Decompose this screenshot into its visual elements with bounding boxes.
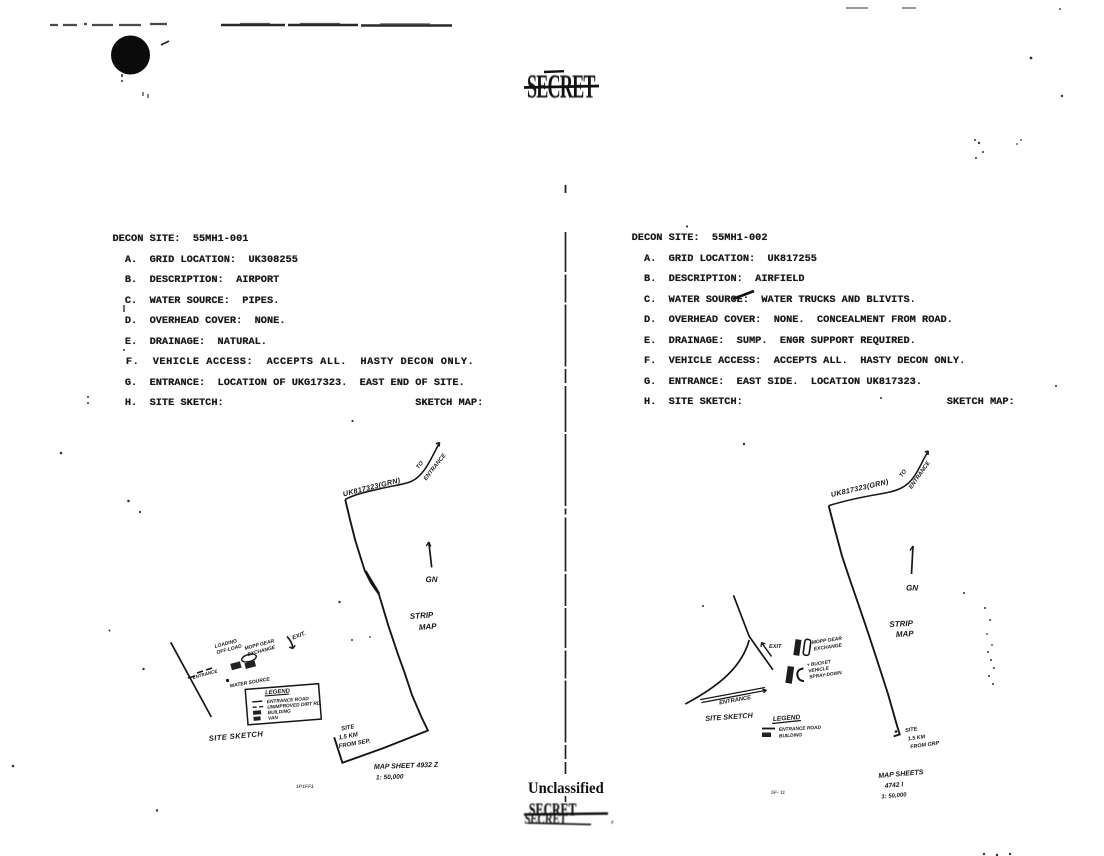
svg-text:1: 50,000: 1: 50,000 bbox=[376, 774, 404, 782]
svg-text:GN: GN bbox=[426, 575, 438, 584]
svg-text:MAP SHEET 4932 Z: MAP SHEET 4932 Z bbox=[374, 762, 439, 771]
svg-text:1.5 KM: 1.5 KM bbox=[338, 731, 359, 741]
svg-text:SITE SKETCH: SITE SKETCH bbox=[208, 729, 263, 743]
svg-text:TO: TO bbox=[898, 468, 909, 479]
svg-text:ENTRANCE: ENTRANCE bbox=[192, 668, 219, 680]
svg-text:1P1FF1: 1P1FF1 bbox=[296, 784, 314, 790]
svg-text:SITE: SITE bbox=[905, 726, 918, 734]
svg-text:4742 I: 4742 I bbox=[884, 781, 904, 790]
svg-text:STRIP: STRIP bbox=[410, 610, 435, 621]
svg-text:1: 50,000: 1: 50,000 bbox=[881, 791, 908, 800]
svg-text:1.5 KM: 1.5 KM bbox=[907, 734, 926, 742]
svg-text:TO: TO bbox=[415, 459, 426, 470]
svg-text:EXIT: EXIT bbox=[769, 644, 782, 650]
svg-text:FROM GRP: FROM GRP bbox=[910, 740, 940, 750]
svg-text:UK817323(GRN): UK817323(GRN) bbox=[830, 477, 890, 499]
svg-text:VAN: VAN bbox=[268, 715, 279, 722]
svg-text:5F- 11: 5F- 11 bbox=[771, 790, 785, 796]
svg-text:ENTRANCE: ENTRANCE bbox=[907, 459, 932, 490]
svg-text:MAP SHEETS: MAP SHEETS bbox=[878, 769, 924, 780]
svg-text:MAP: MAP bbox=[419, 622, 438, 632]
svg-text:ENTRANCE ROAD: ENTRANCE ROAD bbox=[779, 725, 822, 733]
svg-text:BUILDING: BUILDING bbox=[779, 732, 803, 739]
svg-text:STRIP: STRIP bbox=[889, 619, 914, 629]
svg-text:EXIT.: EXIT. bbox=[292, 631, 308, 642]
svg-text:GN: GN bbox=[906, 584, 918, 593]
svg-text:MAP: MAP bbox=[896, 629, 915, 639]
svg-text:SITE: SITE bbox=[341, 723, 356, 732]
svg-text:SITE SKETCH: SITE SKETCH bbox=[705, 711, 754, 723]
